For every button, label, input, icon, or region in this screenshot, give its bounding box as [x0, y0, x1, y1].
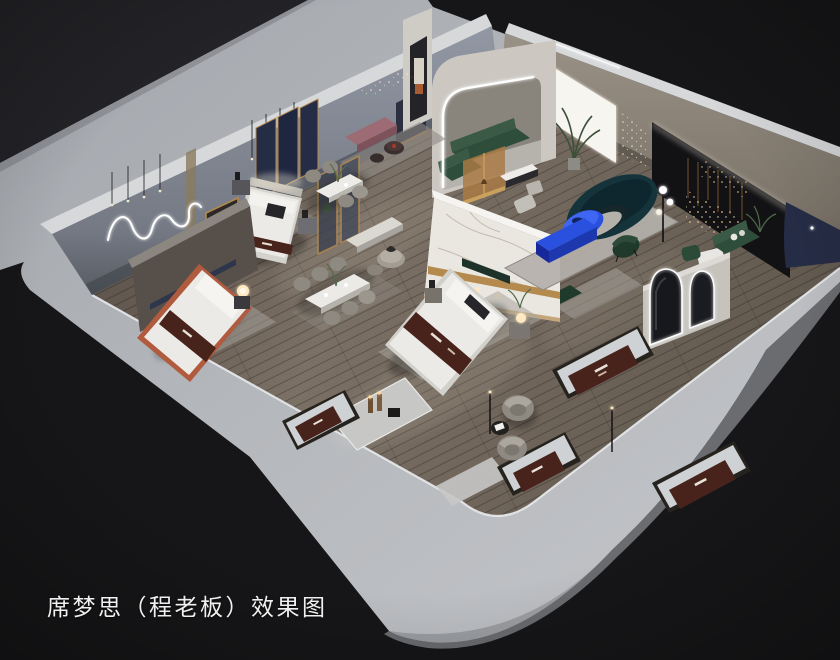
rendering-scene [0, 0, 840, 660]
showroom-rendering-image: 席梦思（程老板）效果图 [0, 0, 840, 660]
caption-title: 席梦思（程老板）效果图 [47, 588, 328, 622]
vignette-overlay [0, 0, 840, 660]
